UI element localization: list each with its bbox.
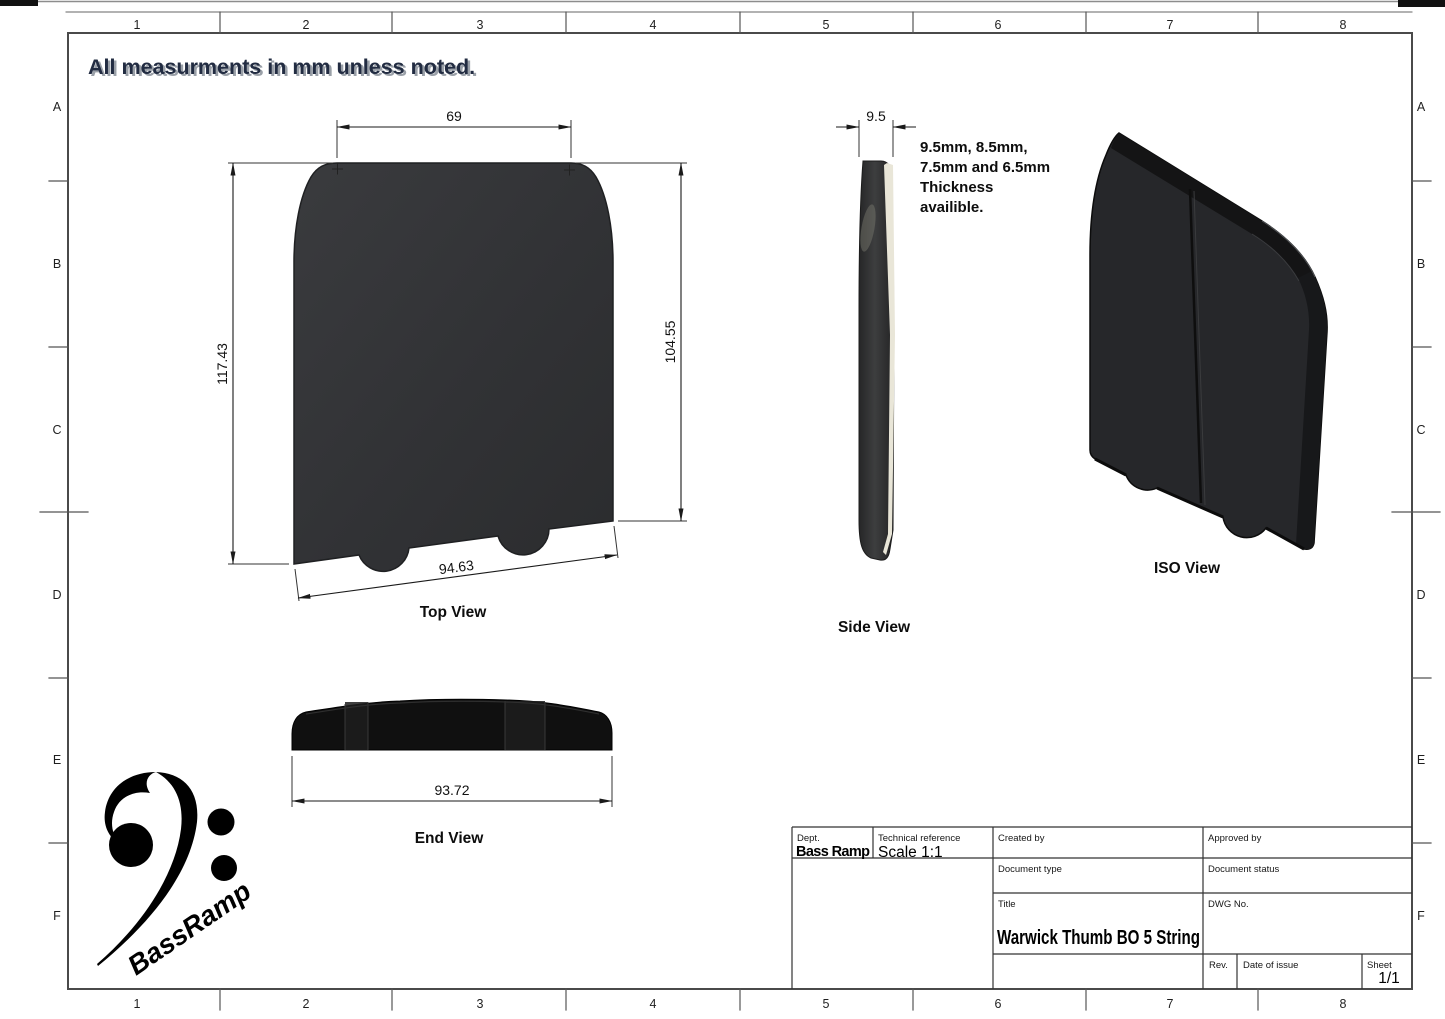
zone-row-label: E (53, 753, 61, 767)
zone-row-label: B (1417, 257, 1425, 271)
zone-col-label: 8 (1340, 997, 1347, 1011)
zone-col-label: 2 (303, 997, 310, 1011)
zone-col-label: 5 (823, 18, 830, 32)
top-view-label: Top View (420, 604, 488, 621)
end-view-groove-band (345, 702, 368, 750)
zone-col-label: 3 (477, 18, 484, 32)
side-view-label: Side View (838, 619, 911, 636)
zone-row-label: C (52, 423, 61, 437)
document-type-label: Document type (998, 864, 1062, 875)
zone-col-label: 5 (823, 997, 830, 1011)
bass-clef-ball (109, 823, 153, 867)
approved-by-label: Approved by (1208, 833, 1262, 844)
top-view-part-outline (294, 163, 613, 571)
title-block: Dept. Bass Ramp Technical reference Scal… (792, 827, 1412, 989)
dimension-end-width: 93.72 (292, 756, 612, 807)
zone-col-label: 1 (134, 997, 141, 1011)
dwg-no-label: DWG No. (1208, 899, 1249, 910)
document-status-label: Document status (1208, 864, 1280, 875)
thickness-note: 9.5mm, 8.5mm, 7.5mm and 6.5mm Thickness … (920, 139, 1050, 216)
ruler-ticks-top (220, 12, 1258, 33)
title-label: Title (998, 899, 1016, 910)
ruler-ticks-left (40, 181, 88, 843)
dim-value-bottom-width: 94.63 (438, 557, 475, 577)
rev-label: Rev. (1209, 960, 1228, 971)
zone-row-label: E (1417, 753, 1425, 767)
dept-value: Bass Ramp (796, 844, 870, 860)
date-of-issue-label: Date of issue (1243, 960, 1298, 971)
dim-value-thickness: 9.5 (866, 108, 886, 124)
zone-row-label: F (53, 909, 61, 923)
trim-mark-top-left (0, 0, 38, 6)
ruler-ticks-right (1392, 181, 1440, 843)
note-line: Thickness (920, 179, 993, 196)
bass-clef-dot-upper (208, 809, 235, 836)
zone-col-label: 4 (650, 997, 657, 1011)
technical-reference-value: Scale 1:1 (878, 844, 943, 861)
zone-col-label: 8 (1340, 18, 1347, 32)
zone-col-label: 7 (1167, 18, 1174, 32)
dimension-top-width: 69 (337, 108, 571, 158)
logo-wordmark: BassRamp (122, 875, 257, 981)
trim-mark-top-right (1398, 0, 1445, 7)
created-by-label: Created by (998, 833, 1045, 844)
dimension-thickness: 9.5 (836, 108, 916, 157)
zone-col-label: 6 (995, 997, 1002, 1011)
top-view: 69 117.43 104.55 94.63 Top View (214, 108, 687, 621)
bassramp-logo: BassRamp (97, 772, 257, 981)
zone-col-label: 6 (995, 18, 1002, 32)
technical-reference-label: Technical reference (878, 833, 960, 844)
zone-col-label: 4 (650, 18, 657, 32)
side-view: 9.5 9.5mm, 8.5mm, 7.5mm and 6.5mm Thickn… (836, 108, 1050, 636)
dim-value-left-height: 117.43 (214, 343, 230, 385)
iso-view: ISO View (1090, 133, 1327, 577)
zone-row-label: D (52, 588, 61, 602)
ruler-ticks-bottom (220, 989, 1258, 1010)
sheet-heading: All measurments in mm unless noted. (88, 55, 475, 79)
zone-col-label: 3 (477, 997, 484, 1011)
end-view-groove-band (505, 701, 545, 750)
dim-value-right-height: 104.55 (662, 320, 678, 363)
end-view: 93.72 End View (292, 699, 612, 847)
zone-col-label: 2 (303, 18, 310, 32)
zone-col-label: 7 (1167, 997, 1174, 1011)
note-line: 9.5mm, 8.5mm, (920, 139, 1028, 156)
sheet-value: 1/1 (1378, 970, 1400, 987)
zone-row-label: D (1416, 588, 1425, 602)
dept-label: Dept. (797, 833, 820, 844)
zone-row-label: A (53, 100, 62, 114)
note-line: 7.5mm and 6.5mm (920, 159, 1050, 176)
zone-row-label: A (1417, 100, 1426, 114)
zone-row-label: B (53, 257, 61, 271)
iso-view-label: ISO View (1154, 560, 1221, 577)
dim-value-end-width: 93.72 (434, 782, 469, 798)
drawing-sheet: 1 2 3 4 5 6 7 8 1 2 3 4 5 6 7 8 A B C D … (0, 0, 1445, 1019)
end-view-label: End View (415, 830, 485, 847)
zone-col-label: 1 (134, 18, 141, 32)
note-line: availible. (920, 199, 983, 216)
zone-row-label: C (1416, 423, 1425, 437)
title-value: Warwick Thumb BO 5 String (997, 927, 1200, 949)
zone-row-label: F (1417, 909, 1425, 923)
dim-value-top-width: 69 (446, 108, 462, 124)
drawing-canvas: 1 2 3 4 5 6 7 8 1 2 3 4 5 6 7 8 A B C D … (0, 0, 1445, 1019)
bass-clef-dot-lower (211, 855, 237, 881)
page-edge-marks (0, 0, 1445, 7)
